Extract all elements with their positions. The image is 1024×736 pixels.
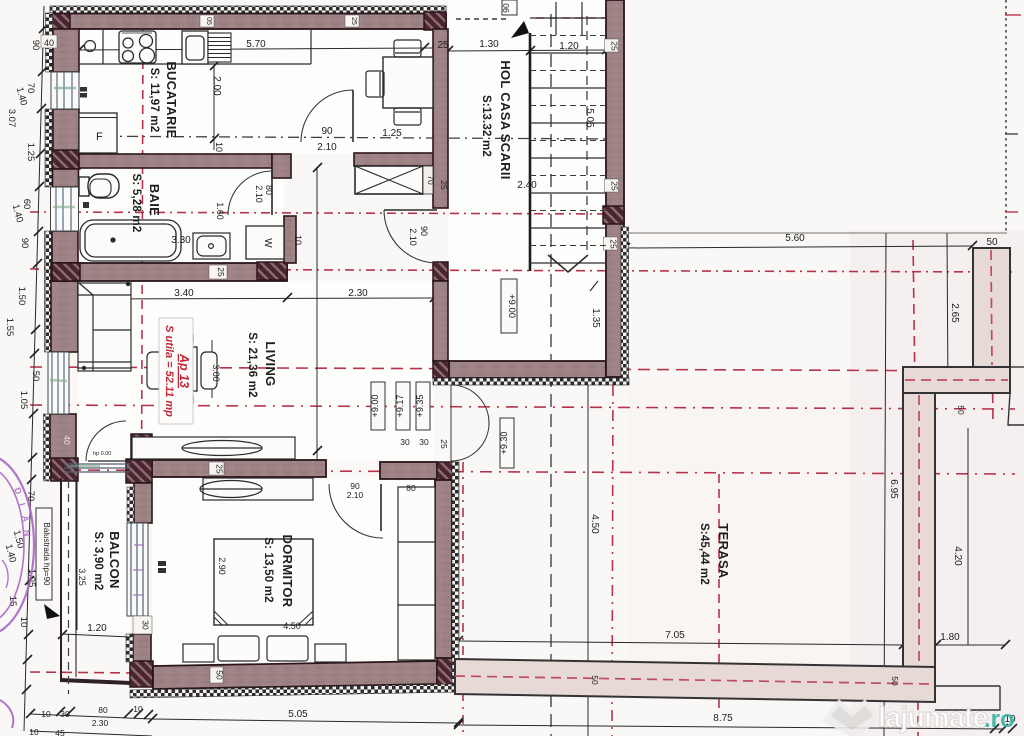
svg-text:90: 90 — [19, 238, 30, 249]
svg-text:+9.30: +9.30 — [499, 432, 509, 455]
svg-text:2.10: 2.10 — [408, 228, 418, 246]
svg-text:6.95: 6.95 — [888, 479, 899, 499]
svg-text:50: 50 — [890, 676, 900, 686]
svg-text:S: 21,36 m2: S: 21,36 m2 — [246, 332, 258, 398]
svg-text:10: 10 — [293, 235, 303, 245]
svg-text:10: 10 — [41, 709, 51, 719]
svg-text:2.30: 2.30 — [348, 288, 368, 299]
svg-text:2.40: 2.40 — [517, 180, 537, 191]
svg-text:90: 90 — [321, 126, 333, 137]
svg-text:25: 25 — [610, 181, 620, 191]
svg-text:BUCATARIE: BUCATARIE — [164, 61, 179, 138]
svg-text:25: 25 — [216, 267, 226, 277]
svg-text:S: 3,90 m2: S: 3,90 m2 — [92, 532, 104, 591]
svg-text:S: 5,28 m2: S: 5,28 m2 — [130, 174, 142, 233]
svg-text:2.30: 2.30 — [92, 718, 109, 728]
svg-text:1.25: 1.25 — [382, 128, 402, 139]
svg-text:3.25: 3.25 — [77, 568, 87, 586]
svg-text:+9.00: +9.00 — [506, 294, 517, 318]
svg-text:+9.35: +9.35 — [415, 395, 425, 418]
svg-text:S: 11,97 m2: S: 11,97 m2 — [148, 68, 160, 133]
svg-text:2.10: 2.10 — [347, 490, 364, 500]
svg-text:1.25: 1.25 — [25, 143, 36, 162]
svg-text:+9.00: +9.00 — [370, 395, 380, 418]
svg-text:70: 70 — [426, 175, 436, 185]
svg-text:2.90: 2.90 — [217, 557, 227, 575]
svg-text:TERASA: TERASA — [716, 523, 731, 579]
svg-text:25: 25 — [439, 439, 449, 449]
svg-text:05: 05 — [205, 17, 212, 25]
svg-text:2.00: 2.00 — [211, 76, 222, 96]
svg-text:hp 0.00: hp 0.00 — [93, 451, 111, 457]
svg-text:10: 10 — [214, 142, 224, 152]
svg-text:30: 30 — [60, 709, 70, 719]
svg-text:N: N — [22, 529, 32, 536]
svg-text:5.05: 5.05 — [288, 709, 308, 720]
svg-text:4.50: 4.50 — [283, 621, 301, 631]
svg-text:1.20: 1.20 — [87, 623, 107, 634]
svg-text:2.10: 2.10 — [254, 185, 264, 203]
svg-text:3.30: 3.30 — [171, 235, 191, 246]
svg-text:1.50: 1.50 — [16, 287, 27, 306]
svg-text:5.05: 5.05 — [584, 108, 595, 128]
svg-text:+9.17: +9.17 — [395, 395, 405, 418]
svg-text:S:13.32 m2: S:13.32 m2 — [480, 95, 492, 157]
svg-text:25: 25 — [609, 239, 619, 249]
svg-text:40: 40 — [62, 435, 72, 445]
svg-text:90: 90 — [30, 40, 41, 51]
svg-text:40: 40 — [44, 38, 54, 48]
svg-text:25: 25 — [437, 40, 449, 51]
svg-text:F: F — [96, 131, 103, 143]
svg-text:Ap 13: Ap 13 — [177, 353, 191, 388]
svg-text:10: 10 — [29, 727, 39, 736]
svg-text:2.10: 2.10 — [317, 142, 337, 153]
svg-text:5.60: 5.60 — [785, 233, 805, 244]
svg-text:BAIE: BAIE — [147, 184, 162, 216]
svg-text:1.80: 1.80 — [940, 632, 960, 643]
svg-text:80: 80 — [98, 705, 108, 715]
svg-text:1.60: 1.60 — [215, 202, 225, 220]
svg-text:5.70: 5.70 — [246, 39, 266, 50]
svg-text:10: 10 — [133, 704, 143, 714]
svg-text:LIVING: LIVING — [263, 341, 278, 386]
svg-text:80: 80 — [264, 185, 274, 195]
svg-text:1.55: 1.55 — [4, 318, 15, 337]
svg-text:50: 50 — [986, 237, 998, 248]
svg-text:3.00: 3.00 — [211, 364, 221, 382]
svg-text:S: 13,50 m2: S: 13,50 m2 — [262, 537, 274, 603]
svg-text:50: 50 — [30, 371, 41, 382]
svg-text:7.05: 7.05 — [665, 630, 685, 641]
svg-text:.ro: .ro — [984, 706, 1015, 733]
svg-text:30: 30 — [400, 437, 410, 447]
svg-text:2.65: 2.65 — [949, 303, 960, 323]
svg-text:1.05: 1.05 — [18, 391, 29, 410]
svg-text:50: 50 — [590, 675, 600, 685]
svg-text:lajumate: lajumate — [878, 702, 989, 734]
svg-text:8.75: 8.75 — [713, 713, 733, 724]
svg-text:HOL CASA SCARII: HOL CASA SCARII — [498, 60, 513, 179]
svg-text:S:45,44 m2: S:45,44 m2 — [698, 523, 710, 585]
svg-text:60: 60 — [21, 199, 32, 210]
svg-text:3.40: 3.40 — [174, 288, 194, 299]
svg-text:4.50: 4.50 — [589, 514, 600, 534]
svg-text:BALCON: BALCON — [107, 531, 122, 588]
svg-text:25: 25 — [215, 464, 225, 474]
svg-text:80: 80 — [406, 483, 416, 493]
svg-text:S utila = 52.11 mp: S utila = 52.11 mp — [163, 325, 175, 417]
svg-text:30: 30 — [141, 620, 151, 630]
svg-text:90: 90 — [419, 226, 429, 236]
svg-text:DORMITOR: DORMITOR — [280, 535, 295, 608]
svg-text:W: W — [262, 238, 273, 248]
svg-text:50: 50 — [956, 405, 966, 415]
svg-text:25: 25 — [610, 41, 620, 51]
svg-text:45: 45 — [55, 728, 65, 736]
svg-text:10: 10 — [18, 617, 29, 628]
svg-text:3.07: 3.07 — [6, 109, 17, 128]
svg-text:4.20: 4.20 — [952, 546, 963, 566]
svg-text:90: 90 — [501, 3, 511, 13]
svg-text:1.20: 1.20 — [559, 41, 579, 52]
svg-text:25: 25 — [350, 17, 357, 25]
svg-text:1.30: 1.30 — [479, 39, 499, 50]
svg-text:30: 30 — [419, 437, 429, 447]
svg-text:1.35: 1.35 — [590, 308, 601, 328]
svg-text:Balustrada hp=90: Balustrada hp=90 — [42, 523, 51, 586]
svg-text:25: 25 — [439, 180, 449, 190]
svg-text:50: 50 — [215, 670, 225, 680]
